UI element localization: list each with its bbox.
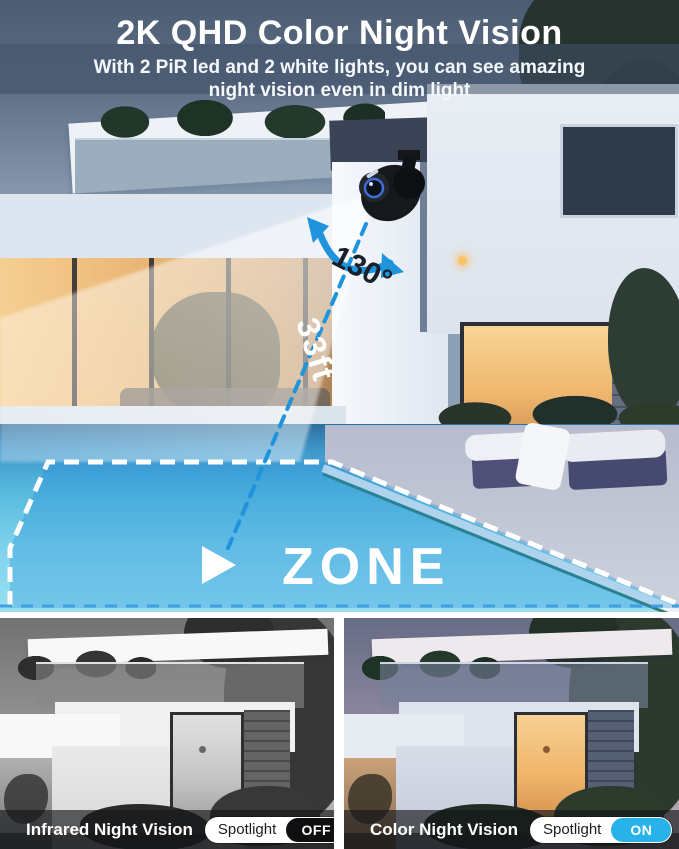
subtitle-line-1: With 2 PiR led and 2 white lights, you c… — [0, 57, 679, 79]
toggle-label: Spotlight — [543, 821, 601, 838]
spotlight-toggle[interactable]: Spotlight ON — [530, 817, 672, 843]
page-title: 2K QHD Color Night Vision — [0, 14, 679, 53]
pendant-light — [543, 746, 550, 753]
subtitle-line-2: night vision even in dim light — [0, 80, 679, 102]
infrared-caption-bar: Infrared Night Vision Spotlight OFF — [0, 810, 334, 849]
zone-label: ZONE — [282, 538, 450, 596]
panel-label: Color Night Vision — [370, 820, 518, 840]
color-panel: Color Night Vision Spotlight ON — [344, 618, 679, 849]
comparison-row: Infrared Night Vision Spotlight OFF — [0, 618, 679, 849]
product-image: 130° 33ft ZONE 2K QHD Color Night Vision… — [0, 0, 679, 849]
toggle-state-on[interactable]: ON — [611, 818, 671, 842]
toggle-state-off[interactable]: OFF — [286, 818, 334, 842]
hero-scene: 130° 33ft ZONE 2K QHD Color Night Vision… — [0, 0, 679, 612]
spotlight-toggle[interactable]: Spotlight OFF — [205, 817, 334, 843]
pendant-light — [199, 746, 206, 753]
color-caption-bar: Color Night Vision Spotlight ON — [344, 810, 679, 849]
toggle-label: Spotlight — [218, 821, 276, 838]
infrared-panel: Infrared Night Vision Spotlight OFF — [0, 618, 334, 849]
panel-label: Infrared Night Vision — [26, 820, 193, 840]
